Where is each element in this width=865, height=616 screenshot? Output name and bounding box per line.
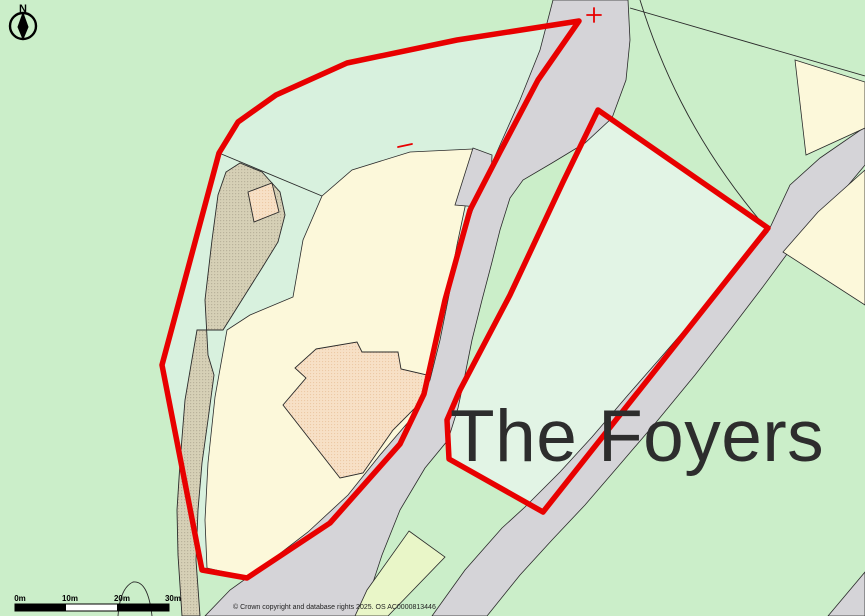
place-label: The Foyers xyxy=(450,396,824,477)
scale-bar-segment-1 xyxy=(15,604,66,611)
os-site-plan-map: The Foyers N 0m 10m 20m 30m © Crown copy… xyxy=(0,0,865,616)
scale-label-10: 10m xyxy=(62,594,78,603)
map-canvas: The Foyers N 0m 10m 20m 30m © Crown copy… xyxy=(0,0,865,616)
scale-bar-segment-2 xyxy=(117,604,169,611)
copyright-text: © Crown copyright and database rights 20… xyxy=(233,603,436,611)
scale-label-0: 0m xyxy=(14,594,26,603)
scale-label-30: 30m xyxy=(165,594,181,603)
scale-label-20: 20m xyxy=(114,594,130,603)
